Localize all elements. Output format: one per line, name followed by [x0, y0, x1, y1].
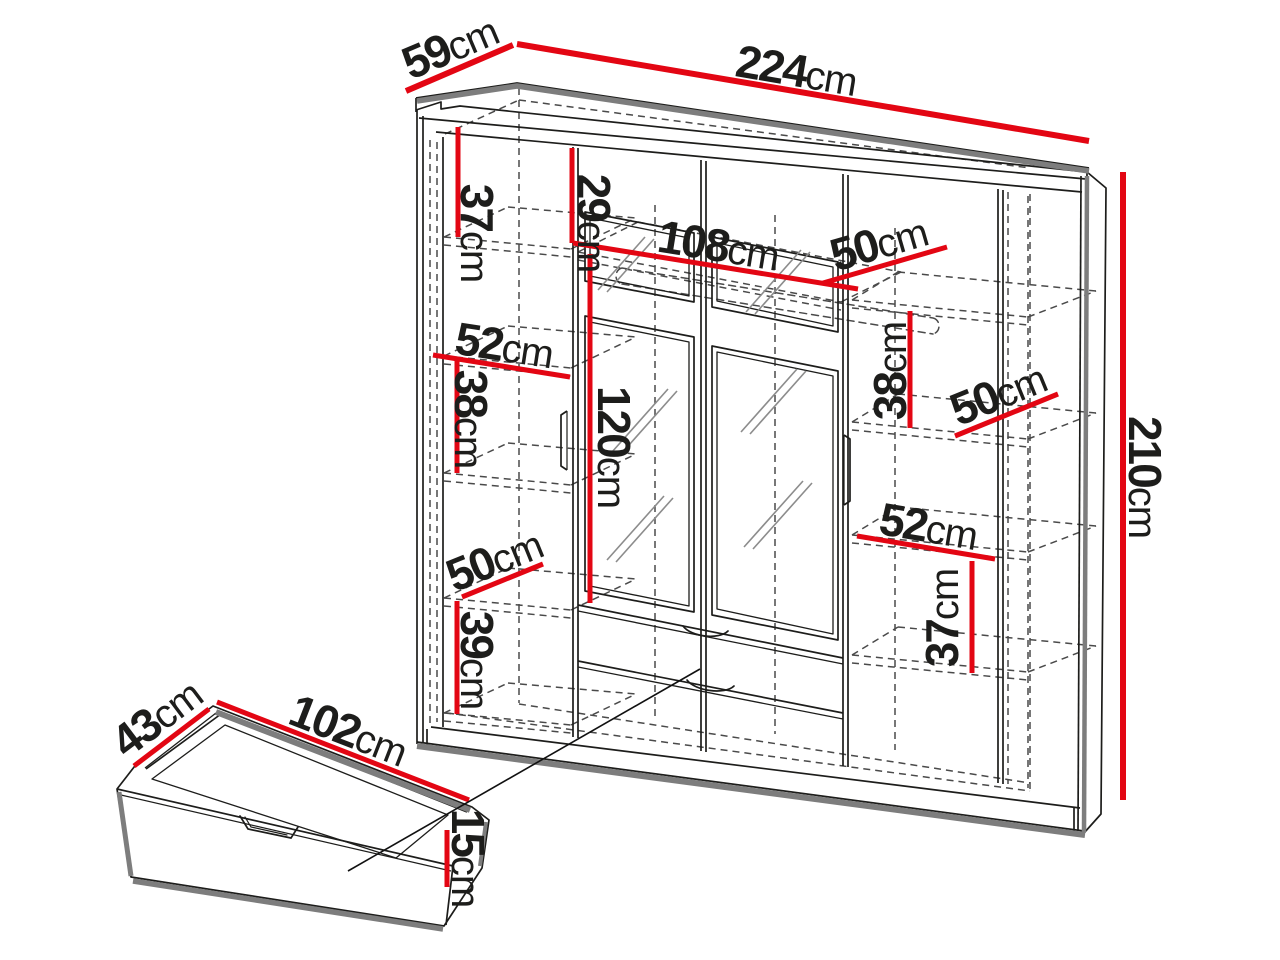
dim-label-left-middle-shelf: 38cm — [445, 370, 497, 469]
dim-label-left-top-shelf: 37cm — [451, 184, 503, 283]
dim-label-top-width: 224cm — [732, 34, 861, 106]
dim-label-height: 210cm — [1119, 416, 1171, 538]
dim-label-right-lower-shelf: 37cm — [916, 569, 968, 668]
dim-label-top-depth: 59cm — [394, 3, 505, 89]
dim-label-middle-top-gap: 29cm — [568, 174, 620, 273]
dim-label-left-lower-shelf: 39cm — [451, 611, 503, 710]
dim-label-right-upper-shelf: 38cm — [864, 322, 916, 421]
wardrobe-dimension-diagram: 59cm 224cm 210cm 37cm 29cm 108cm 50cm 38… — [0, 0, 1280, 960]
dim-label-mirror-section-height: 120cm — [588, 386, 640, 508]
dim-label-drawer-height: 15cm — [442, 809, 494, 908]
